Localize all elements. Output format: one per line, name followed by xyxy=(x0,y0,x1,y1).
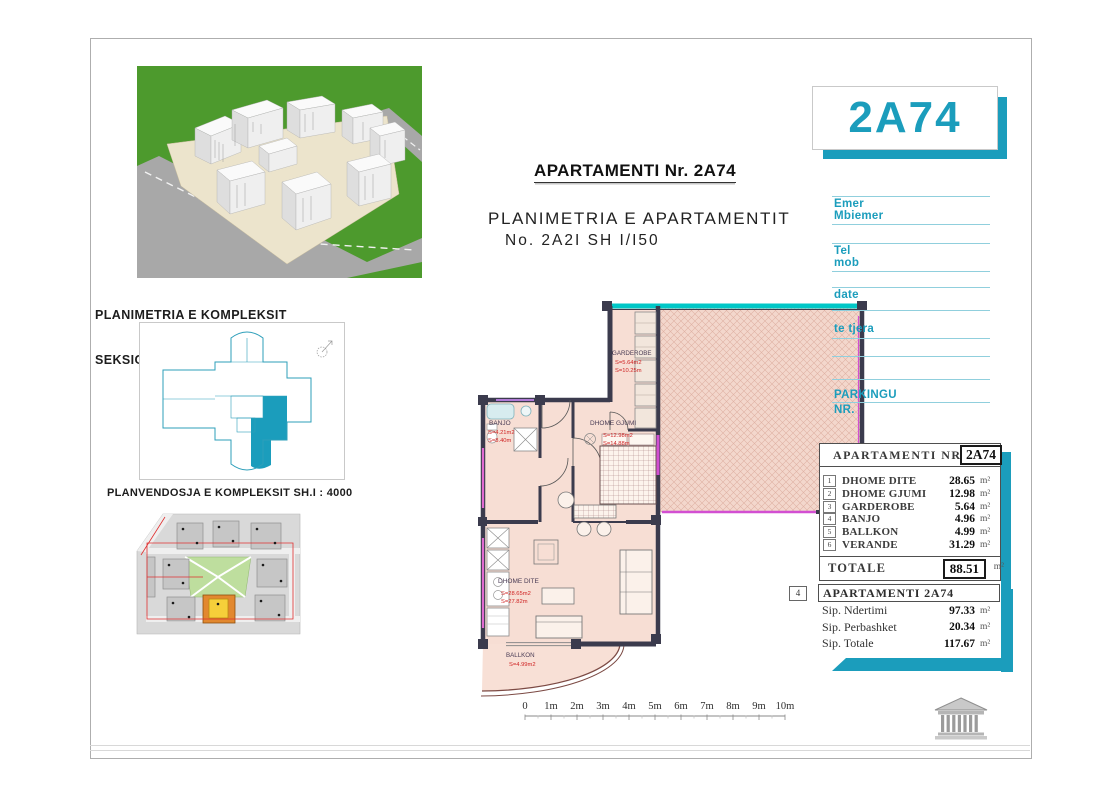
site-plan-thumbnail xyxy=(133,511,303,637)
form-line xyxy=(832,224,990,225)
summary-table: 4 APARTAMENTI 2A74 Sip. Ndertimi 97.33 m… xyxy=(818,584,1000,654)
total-row: TOTALE 88.51 m² xyxy=(820,556,1000,580)
room-area-garderobe: S=5.64m2 xyxy=(615,360,642,366)
room-label-dite: DHOME DITE xyxy=(498,578,539,585)
scale-tick-label: 9m xyxy=(746,701,772,712)
scale-tick-label: 4m xyxy=(616,701,642,712)
area-table: APARTAMENTI NR. 2A74 1 DHOME DITE 28.65 … xyxy=(819,443,1001,581)
apartment-title: APARTAMENTI Nr. 2A74 xyxy=(495,161,775,183)
footer-line xyxy=(90,745,1030,746)
scale-tick-label: 1m xyxy=(538,701,564,712)
room-label-garderobe: GARDEROBE xyxy=(612,350,652,357)
room-perimeter-garderobe: S=10.25m xyxy=(615,368,642,374)
scale-tick-label: 5m xyxy=(642,701,668,712)
form-label-date: date xyxy=(834,289,859,301)
form-line xyxy=(832,379,990,380)
table-shadow xyxy=(832,658,1013,671)
complex-plan-title-line1: PLANIMETRIA E KOMPLEKSIT xyxy=(95,308,287,323)
room-area-ballkon: S=4.99m2 xyxy=(509,662,536,668)
scale-tick-label: 2m xyxy=(564,701,590,712)
form-label-parkingu: PARKINGU xyxy=(834,389,897,401)
scale-tick-label: 8m xyxy=(720,701,746,712)
complex-3d-render xyxy=(137,66,422,278)
table-row: 5 BALLKON 4.99 m² xyxy=(820,526,1000,539)
scale-tick-label: 10m xyxy=(772,701,798,712)
form-label-tel: Tel xyxy=(834,245,851,257)
site-plan-title: PLANVENDOSJA E KOMPLEKSIT SH.I : 4000 xyxy=(107,487,352,499)
room-area-gjumi: S=12.98m2 xyxy=(603,433,633,439)
table-row: 3 GARDEROBE 5.64 m² xyxy=(820,500,1000,513)
table-row: Sip. Perbashket 20.34 m² xyxy=(818,620,1000,636)
room-area-banjo: S=4.21m2 xyxy=(488,430,515,436)
table-row: 6 VERANDE 31.29 m² xyxy=(820,538,1000,551)
form-line xyxy=(832,356,990,357)
table-row: Sip. Totale 117.67 m² xyxy=(818,636,1000,652)
room-label-gjumi: DHOME GJUMI xyxy=(590,420,636,427)
temple-logo-icon xyxy=(932,696,990,744)
table-row: 4 BANJO 4.96 m² xyxy=(820,513,1000,526)
footer-line xyxy=(90,750,1030,751)
area-table-title: APARTAMENTI NR. xyxy=(833,448,966,463)
floor-plan: GARDEROBE S=5.64m2 S=10.25m DHOME GJUMI … xyxy=(478,300,873,697)
form-line xyxy=(832,310,990,311)
apartment-subtitle: PLANIMETRIA E APARTAMENTIT xyxy=(488,209,780,229)
plan-sheet: PLANIMETRIA E KOMPLEKSIT SEKSIONI 2 SH I… xyxy=(0,0,1115,790)
total-value: 88.51 xyxy=(943,559,986,579)
table-row: 2 DHOME GJUMI 12.98 m² xyxy=(820,488,1000,501)
unit-badge: 2A74 xyxy=(812,86,998,150)
form-label-te-tjera: te tjera xyxy=(834,323,874,335)
total-label: TOTALE xyxy=(828,561,943,576)
table-row: Sip. Ndertimi 97.33 m² xyxy=(818,603,1000,619)
room-perimeter-dite: S=27.82m xyxy=(501,599,528,605)
scale-bar: 0 1m 2m 3m 4m 5m 6m 7m 8m 9m 10m xyxy=(512,701,812,725)
summary-title: APARTAMENTI 2A74 xyxy=(818,584,1000,602)
area-table-header: APARTAMENTI NR. 2A74 xyxy=(820,444,1000,467)
scale-tick-label: 3m xyxy=(590,701,616,712)
form-line xyxy=(832,402,990,403)
apartment-title-text: APARTAMENTI Nr. 2A74 xyxy=(534,161,736,183)
room-label-banjo: BANJO xyxy=(489,420,511,427)
summary-index: 4 xyxy=(789,586,807,601)
form-line xyxy=(832,196,990,197)
scale-ruler-line xyxy=(512,714,812,722)
unit-number: 2A74 xyxy=(848,93,961,143)
form-line xyxy=(832,243,990,244)
section-plan-thumbnail xyxy=(139,322,345,480)
apartment-scale-note: No. 2A2I SH I/I50 xyxy=(505,232,660,250)
room-perimeter-gjumi: S=14.88m xyxy=(603,441,630,447)
form-line xyxy=(832,338,990,339)
form-line xyxy=(832,271,990,272)
room-perimeter-banjo: S=8.40m xyxy=(488,438,512,444)
scale-tick-label: 7m xyxy=(694,701,720,712)
room-label-ballkon: BALLKON xyxy=(506,652,535,659)
form-label-emer: Emer xyxy=(834,198,864,210)
badge-box: 2A74 xyxy=(812,86,998,150)
table-row: 1 DHOME DITE 28.65 m² xyxy=(820,475,1000,488)
form-label-mbiemer: Mbiemer xyxy=(834,210,883,222)
room-area-dite: S=28.65m2 xyxy=(501,591,531,597)
scale-tick-label: 0 xyxy=(512,701,538,712)
scale-tick-label: 6m xyxy=(668,701,694,712)
form-label-mob: mob xyxy=(834,257,859,269)
area-table-unit-no: 2A74 xyxy=(960,445,1002,465)
contact-form: Emer Mbiemer Tel mob date te tjera PARKI… xyxy=(832,192,990,424)
form-line xyxy=(832,287,990,288)
form-label-nr: NR. xyxy=(834,404,855,416)
